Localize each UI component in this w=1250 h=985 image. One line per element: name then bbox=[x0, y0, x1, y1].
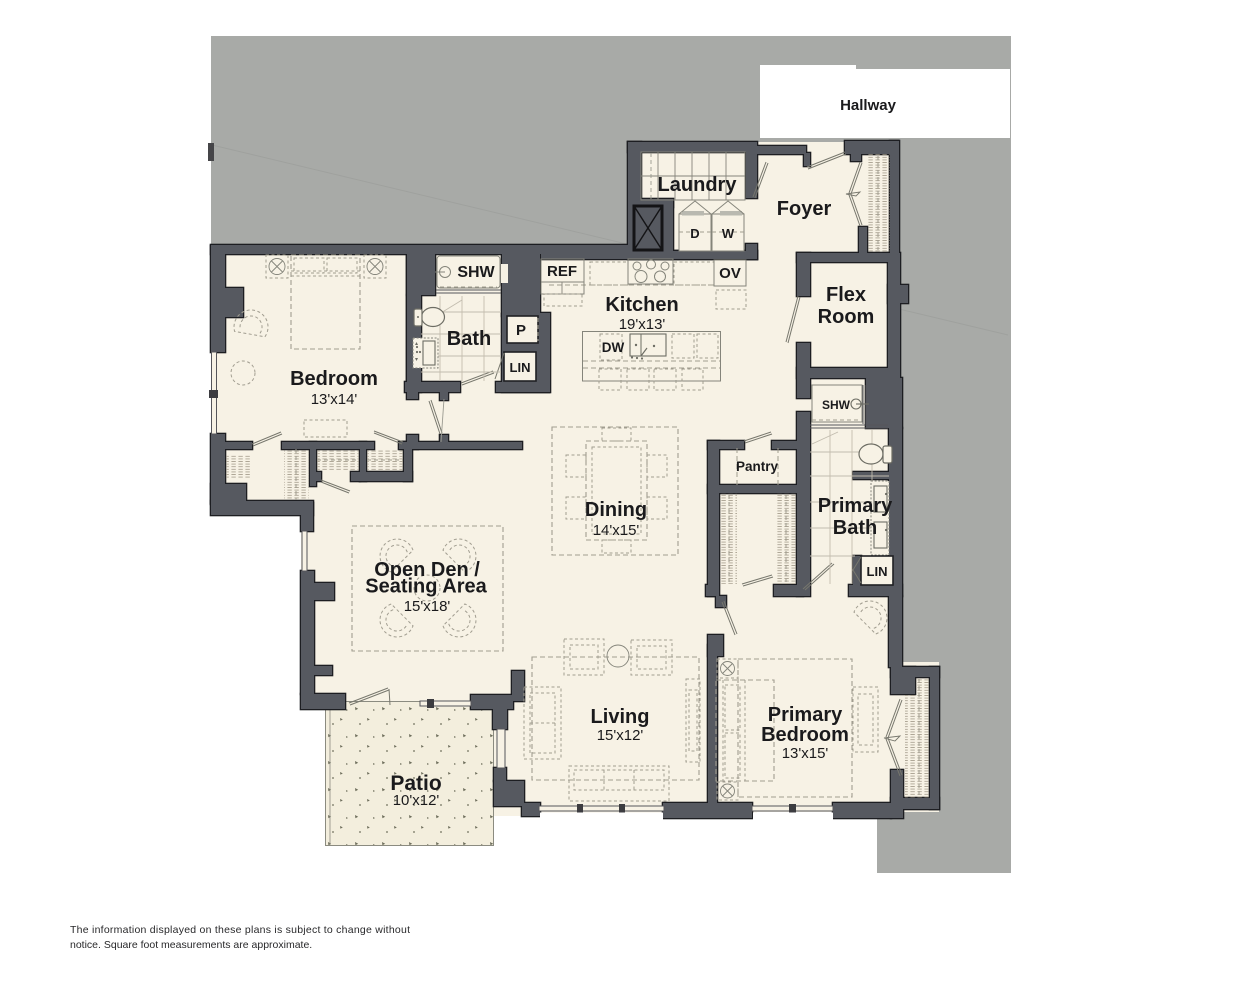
svg-text:notice. Square foot measuremen: notice. Square foot measurements are app… bbox=[70, 939, 312, 951]
svg-text:Pantry: Pantry bbox=[736, 459, 779, 474]
svg-text:Dining: Dining bbox=[585, 499, 647, 521]
svg-text:DW: DW bbox=[602, 340, 625, 355]
svg-text:Bath: Bath bbox=[833, 517, 877, 539]
svg-text:LIN: LIN bbox=[867, 564, 888, 579]
svg-text:P: P bbox=[516, 322, 526, 339]
svg-text:W: W bbox=[722, 226, 735, 241]
svg-text:Kitchen: Kitchen bbox=[605, 294, 678, 316]
svg-text:13'x14': 13'x14' bbox=[311, 391, 358, 408]
svg-text:Hallway: Hallway bbox=[840, 97, 897, 114]
svg-text:Living: Living bbox=[591, 706, 650, 728]
svg-text:10'x12': 10'x12' bbox=[393, 792, 440, 809]
svg-text:Primary: Primary bbox=[768, 704, 843, 726]
svg-text:15'x12': 15'x12' bbox=[597, 727, 644, 744]
svg-text:15'x18': 15'x18' bbox=[404, 598, 451, 615]
svg-text:Bedroom: Bedroom bbox=[761, 724, 849, 746]
svg-text:OV: OV bbox=[719, 265, 741, 282]
svg-text:Seating Area: Seating Area bbox=[365, 576, 487, 598]
svg-text:Bath: Bath bbox=[447, 328, 491, 350]
svg-text:13'x15': 13'x15' bbox=[782, 745, 829, 762]
svg-text:Primary: Primary bbox=[818, 495, 893, 517]
svg-text:Laundry: Laundry bbox=[658, 174, 738, 196]
svg-text:D: D bbox=[690, 226, 699, 241]
svg-text:14'x15': 14'x15' bbox=[593, 522, 640, 539]
svg-text:Foyer: Foyer bbox=[777, 198, 832, 220]
svg-text:19'x13': 19'x13' bbox=[619, 316, 666, 333]
svg-text:Room: Room bbox=[818, 306, 875, 328]
svg-text:Flex: Flex bbox=[826, 284, 866, 306]
svg-text:REF: REF bbox=[547, 263, 577, 280]
svg-text:SHW: SHW bbox=[822, 398, 851, 412]
svg-text:Bedroom: Bedroom bbox=[290, 368, 378, 390]
svg-text:The information displayed on t: The information displayed on these plans… bbox=[70, 924, 410, 936]
svg-text:SHW: SHW bbox=[457, 264, 495, 281]
svg-text:LIN: LIN bbox=[510, 360, 531, 375]
